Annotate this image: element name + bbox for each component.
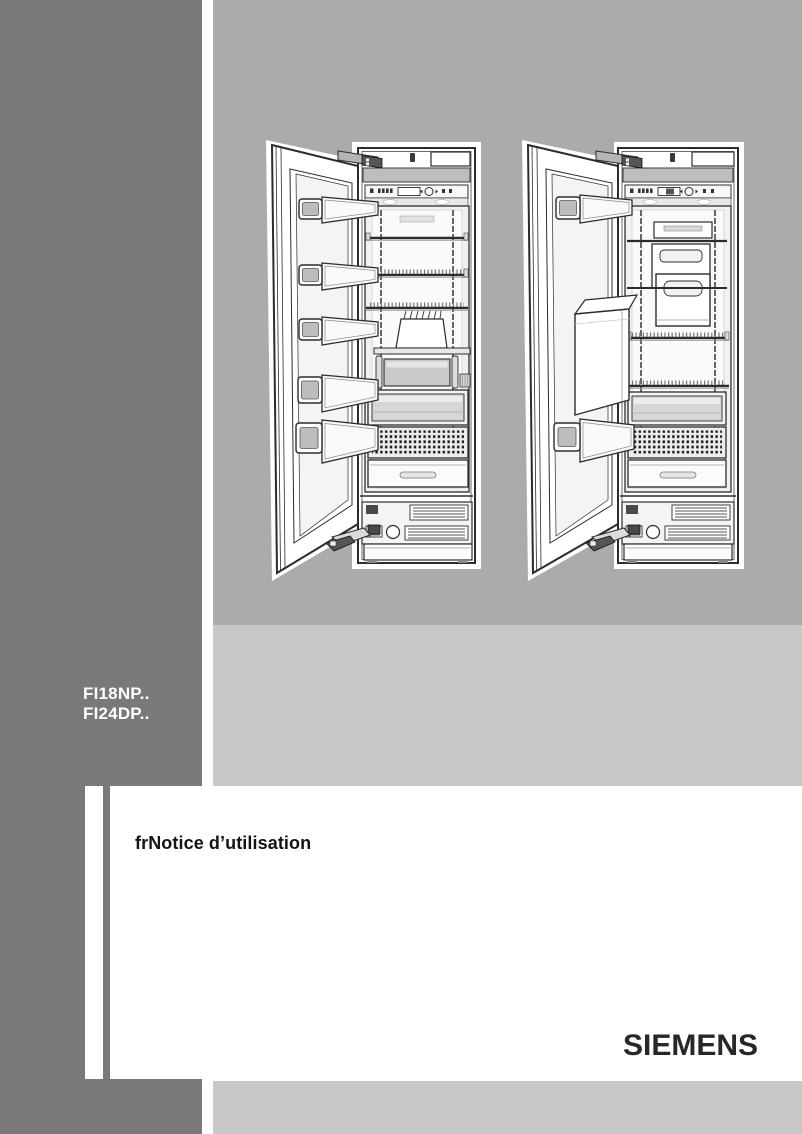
freezer-drawer-upper (628, 392, 726, 425)
brand-logo: SIEMENS (623, 1029, 758, 1063)
ventilated-drawer-front (628, 427, 726, 458)
manual-cover-page: FI18NP.. FI24DP.. frNotice d’utilisation… (0, 0, 802, 1134)
rating-label (431, 152, 470, 166)
plinth (364, 544, 472, 560)
freezer-cabinet (618, 148, 738, 563)
freezer-illustration-left (250, 138, 505, 588)
freezer-drawer-upper (368, 390, 468, 425)
middle-gray-band (213, 625, 802, 786)
footer-gray-band (213, 1081, 802, 1134)
interior-light (383, 200, 397, 205)
sidebar-accent-stripe (103, 786, 110, 1079)
page-title: frNotice d’utilisation (135, 833, 311, 854)
ice-dispenser-housing (575, 295, 637, 415)
sidebar-panel (0, 0, 202, 786)
door-latch-slot (410, 153, 415, 162)
control-panel (625, 185, 731, 198)
interior-light (697, 200, 711, 205)
control-knob (685, 188, 693, 196)
freezer-interior (625, 198, 731, 492)
model-numbers: FI18NP.. FI24DP.. (83, 684, 150, 724)
freezer-drawer-lower (368, 460, 468, 487)
model-number-line1: FI18NP.. (83, 684, 150, 704)
control-knob (425, 188, 433, 196)
rating-label (692, 152, 734, 166)
door-latch-slot (670, 153, 675, 162)
illustration-panel (213, 0, 802, 625)
freezer-drawer-lower (628, 460, 726, 487)
pullout-tray (376, 356, 470, 388)
freezer-interior (365, 198, 470, 492)
plinth (624, 544, 732, 560)
model-number-line2: FI24DP.. (83, 704, 150, 724)
ventilated-drawer-front (368, 427, 468, 458)
control-panel (365, 185, 468, 198)
interior-light (643, 200, 657, 205)
temperature-display (398, 188, 420, 196)
compressor-cap (647, 526, 660, 539)
compressor-cap (387, 526, 400, 539)
freezer-illustration-right (518, 138, 770, 588)
interior-light (435, 200, 449, 205)
sidebar-bottom-bar (0, 1079, 202, 1134)
